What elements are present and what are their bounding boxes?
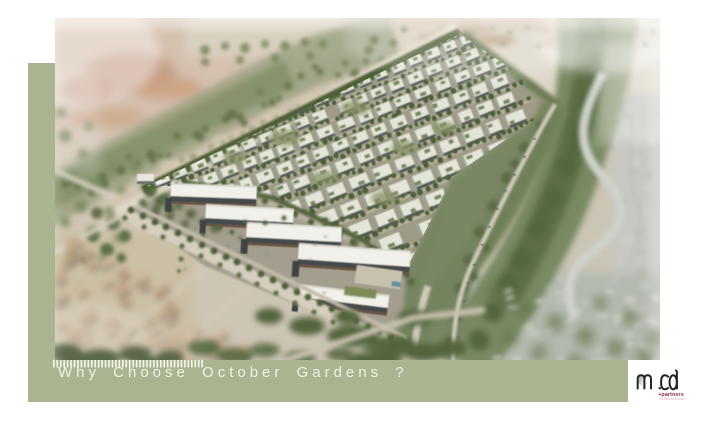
svg-text:Private And Gated Concepts: Private And Gated Concepts xyxy=(659,397,685,400)
svg-text:+partners: +partners xyxy=(658,392,684,398)
